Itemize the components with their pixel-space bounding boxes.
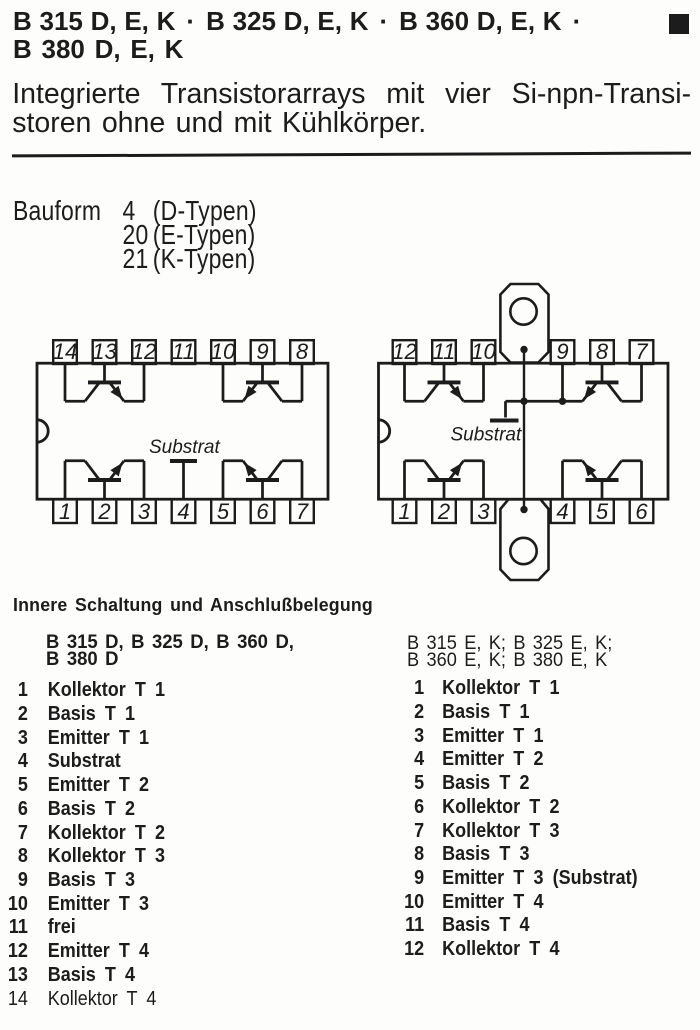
svg-text:Substrat: Substrat [149, 437, 220, 458]
svg-text:11: 11 [172, 339, 195, 364]
svg-text:10: 10 [211, 339, 236, 364]
svg-text:9: 9 [256, 339, 268, 364]
svg-text:5: 5 [217, 499, 230, 524]
svg-text:4: 4 [556, 499, 568, 524]
svg-text:4: 4 [177, 499, 189, 524]
svg-text:1: 1 [59, 499, 71, 524]
svg-text:6: 6 [256, 499, 269, 524]
svg-text:10: 10 [471, 339, 496, 364]
svg-text:13: 13 [92, 339, 117, 364]
svg-text:14: 14 [53, 339, 77, 364]
svg-text:12: 12 [132, 339, 156, 364]
svg-text:Substrat: Substrat [451, 425, 522, 446]
svg-text:8: 8 [296, 339, 309, 364]
svg-text:2: 2 [437, 499, 450, 524]
svg-text:12: 12 [392, 339, 416, 364]
svg-text:5: 5 [596, 499, 609, 524]
svg-text:7: 7 [635, 339, 648, 364]
svg-text:3: 3 [138, 499, 151, 524]
svg-text:9: 9 [556, 339, 568, 364]
svg-text:1: 1 [398, 499, 410, 524]
svg-text:6: 6 [635, 499, 648, 524]
svg-text:3: 3 [477, 499, 490, 524]
svg-text:11: 11 [433, 339, 456, 364]
svg-text:8: 8 [596, 339, 609, 364]
svg-text:2: 2 [97, 499, 110, 524]
svg-text:7: 7 [296, 499, 309, 524]
